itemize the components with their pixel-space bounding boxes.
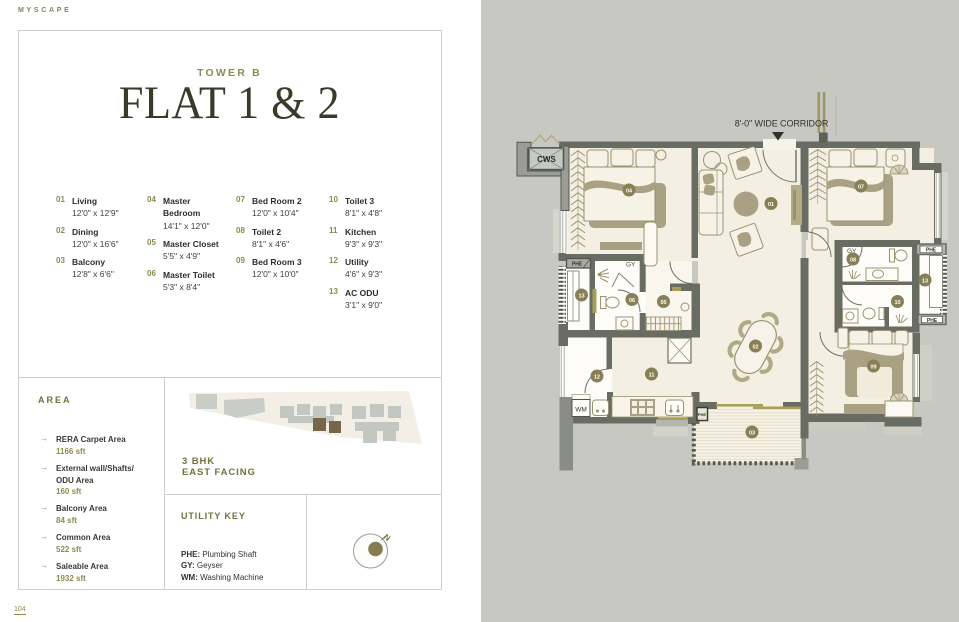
svg-text:01: 01 [768,202,774,208]
svg-text:07: 07 [858,185,864,191]
svg-text:06: 06 [629,298,635,304]
svg-text:13: 13 [922,279,928,285]
svg-text:PHE: PHE [698,412,707,417]
svg-text:PHE: PHE [572,262,583,268]
svg-text:08: 08 [850,258,856,264]
svg-text:WM: WM [575,407,587,414]
svg-text:02: 02 [752,345,758,351]
svg-text:12: 12 [594,375,600,381]
svg-text:09: 09 [870,365,876,371]
svg-text:04: 04 [626,189,633,195]
svg-text:CWS: CWS [537,155,556,164]
svg-text:11: 11 [649,373,655,379]
svg-text:8'-0" WIDE CORRIDOR: 8'-0" WIDE CORRIDOR [735,119,829,129]
svg-text:PHE: PHE [926,248,937,254]
svg-text:10: 10 [894,300,900,306]
svg-text:13: 13 [578,294,584,300]
svg-text:PHE: PHE [927,318,938,324]
svg-text:05: 05 [660,300,666,306]
svg-text:GY: GY [626,262,636,269]
svg-text:03: 03 [749,431,755,437]
